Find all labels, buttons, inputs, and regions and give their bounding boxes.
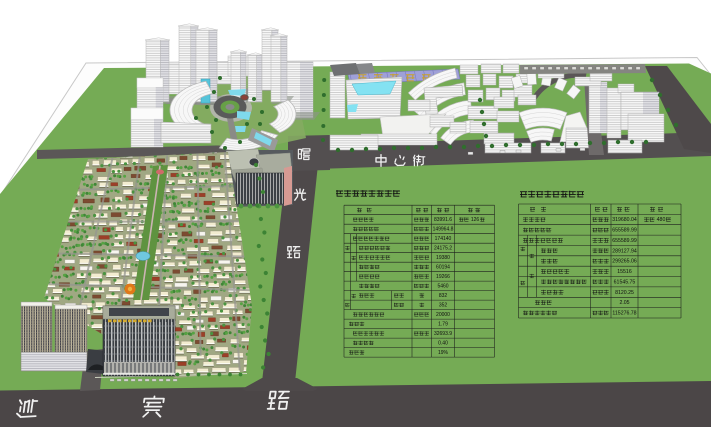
svg-text:61545.75: 61545.75 (614, 279, 636, 285)
svg-text:19266: 19266 (436, 274, 450, 280)
svg-text:19380: 19380 (436, 255, 450, 261)
svg-text:5460: 5460 (437, 284, 448, 290)
svg-text:1.79: 1.79 (438, 322, 448, 328)
svg-text:832: 832 (439, 293, 448, 299)
svg-text:83991.6: 83991.6 (434, 217, 452, 223)
svg-text:115276.78: 115276.78 (612, 311, 636, 317)
svg-text:174140: 174140 (435, 236, 452, 242)
svg-text:32693.9: 32693.9 (434, 331, 452, 337)
svg-text:2.05: 2.05 (619, 300, 629, 306)
svg-text:8120.25: 8120.25 (615, 290, 634, 296)
svg-text:149964.8: 149964.8 (433, 227, 454, 233)
svg-text:0.40: 0.40 (438, 341, 448, 347)
svg-text:20000: 20000 (436, 312, 450, 318)
svg-text:655589.99: 655589.99 (612, 228, 637, 234)
svg-text:19%: 19% (438, 350, 449, 356)
svg-text:289127.94: 289127.94 (612, 248, 637, 254)
svg-text:299265.06: 299265.06 (612, 259, 637, 265)
svg-text:24175.2: 24175.2 (434, 246, 452, 252)
svg-text:60194: 60194 (436, 265, 450, 271)
svg-text:319680.04: 319680.04 (612, 217, 637, 223)
svg-text:352: 352 (439, 303, 448, 309)
svg-text:655589.99: 655589.99 (612, 238, 637, 244)
svg-text:15516: 15516 (617, 269, 632, 275)
svg-text:126: 126 (471, 217, 480, 223)
svg-text:480: 480 (657, 217, 666, 223)
